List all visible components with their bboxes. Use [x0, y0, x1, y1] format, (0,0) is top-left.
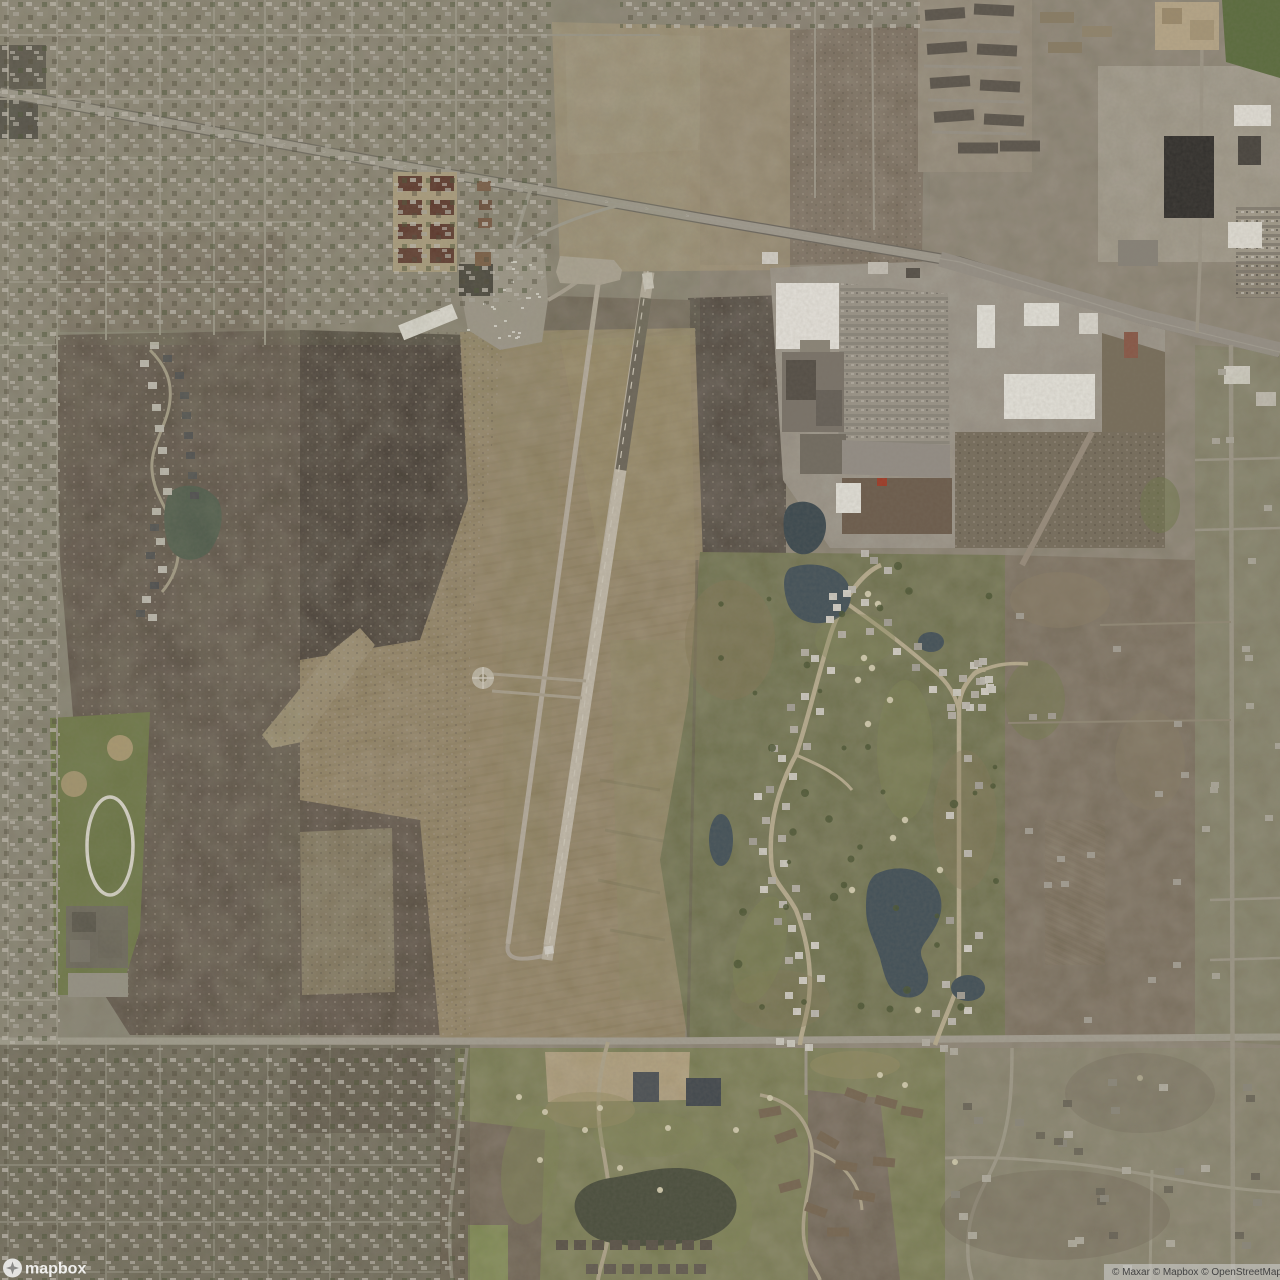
svg-text:© Maxar © Mapbox © OpenStreetM: © Maxar © Mapbox © OpenStreetMap: [1112, 1267, 1280, 1278]
svg-text:mapbox: mapbox: [25, 1261, 86, 1278]
